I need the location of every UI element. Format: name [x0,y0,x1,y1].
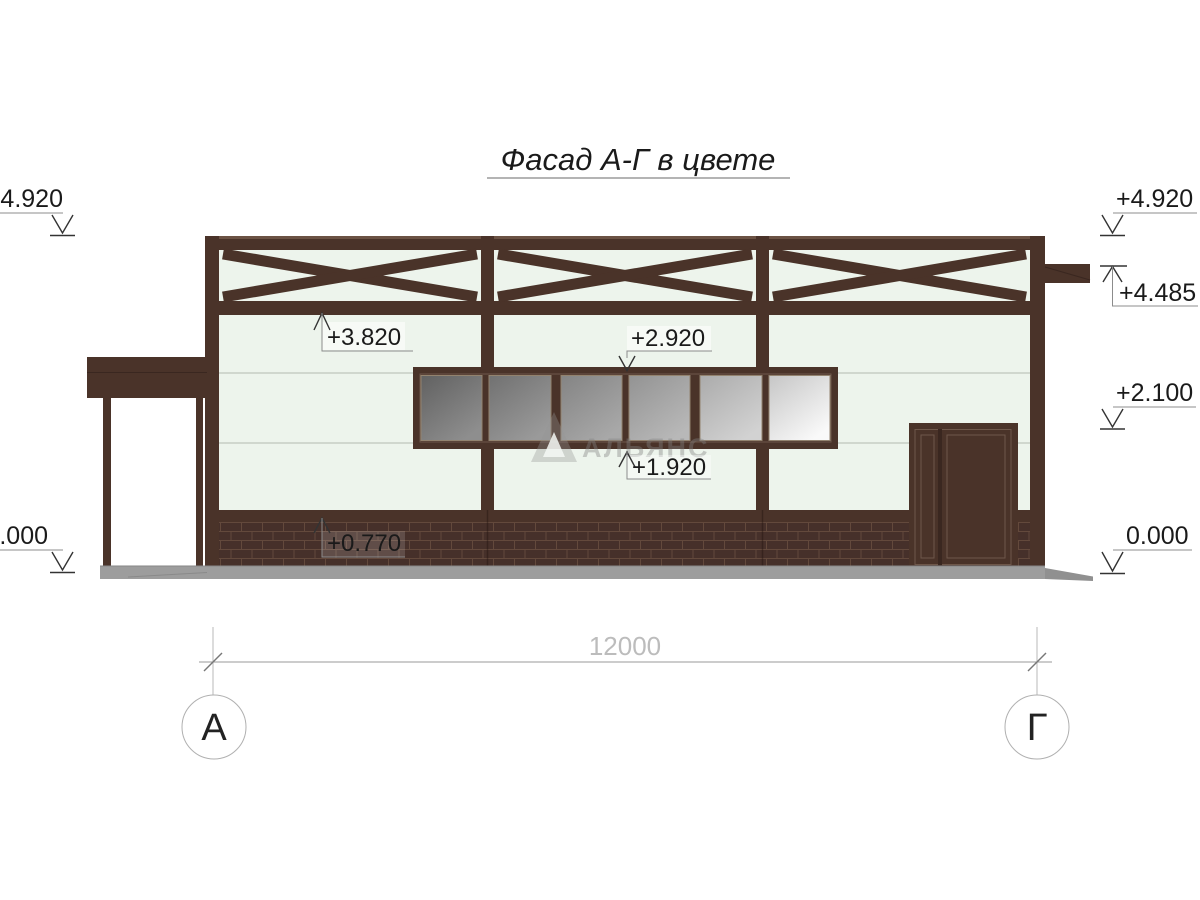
window-pane-4 [629,376,690,441]
axis-label: А [201,707,227,749]
elevation-value: +3.820 [327,324,401,351]
top-beam-highlight [205,236,1045,239]
canopy [87,357,207,568]
elevation-value: +4.485 [1119,279,1196,307]
elevation-mark-right-top: +4.920 [1100,185,1197,236]
elevation-arrow-down-icon [1102,409,1123,427]
page-title: Фасад А-Г в цвете [501,142,776,177]
window-pane-3 [561,376,622,441]
elevation-mark-left-zero: 0.000 [0,522,75,573]
elevation-mark-window-bottom: +1.920 [619,452,711,481]
canopy-post-right [196,398,203,568]
facade-drawing-canvas: АЛЬЯНС Фасад А-Г в цвете +4.920 0.000 +4… [0,0,1200,900]
elevation-arrow-down-icon [52,215,73,233]
plinth-strip [100,566,1045,579]
elevation-mark-right-beam: +4.485 [1100,266,1198,307]
elevation-value: +4.920 [1116,185,1193,213]
entrance-door [909,423,1018,570]
dimension-value: 12000 [589,631,661,661]
window-pane-2 [489,376,551,441]
elevation-arrow-down-icon [52,552,73,570]
canopy-post-left [103,398,111,568]
corner-post-left [205,236,219,566]
elevation-value: +2.100 [1116,379,1193,407]
elevation-mark-left-top: +4.920 [0,185,75,236]
elevation-value: +4.920 [0,185,63,213]
window-pane-6 [769,376,830,441]
drawing-title: Фасад А-Г в цвете [487,142,790,178]
plinth [100,566,1093,581]
corner-post-right [1030,236,1045,566]
axis-label: Г [1027,707,1048,749]
elevation-arrow-down-icon [1102,552,1123,571]
plinth-right-wedge [1045,568,1093,581]
elevation-value: 0.000 [0,522,48,550]
elevation-value: +0.770 [327,530,401,557]
axis-marker-left: А [182,695,246,759]
window-pane-5 [700,376,762,441]
door-leaf-divider [938,429,942,566]
dimension-total-width: 12000 [199,627,1052,695]
brick-band-top [219,510,1030,522]
elevation-value: 0.000 [1126,522,1189,550]
mid-beam [205,301,1045,315]
window-pane-1 [421,376,482,441]
building-facade [87,236,1093,581]
door-frame [909,423,1018,570]
elevation-arrow-down-icon [1102,215,1123,233]
elevation-mark-right-door: +2.100 [1100,379,1196,429]
canopy-fascia [87,357,207,398]
elevation-mark-right-zero: 0.000 [1100,522,1192,574]
elevation-value: +2.920 [631,325,705,352]
elevation-value: +1.920 [632,454,706,481]
axis-marker-right: Г [1005,695,1069,759]
facade-drawing: АЛЬЯНС Фасад А-Г в цвете +4.920 0.000 +4… [0,0,1200,900]
